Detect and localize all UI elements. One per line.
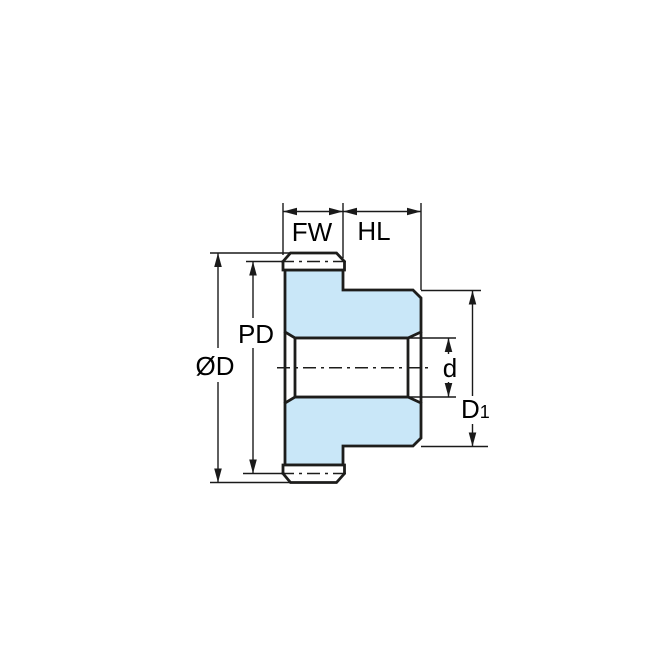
fw-label: FW bbox=[292, 217, 333, 247]
gear-cross-section bbox=[277, 253, 432, 483]
gear-lower-body bbox=[285, 397, 421, 465]
pd-label: PD bbox=[238, 319, 274, 349]
od-label: ØD bbox=[196, 351, 235, 381]
dim-hub-length: HL bbox=[343, 203, 421, 290]
d-label: d bbox=[443, 353, 457, 383]
gear-diagram-svg: FW HL ØD PD d bbox=[0, 0, 670, 670]
dim-face-width: FW bbox=[283, 203, 343, 258]
gear-dimension-diagram: FW HL ØD PD d bbox=[0, 0, 670, 670]
d1-label: D1 bbox=[461, 394, 490, 424]
gear-upper-body bbox=[285, 270, 421, 338]
hl-label: HL bbox=[357, 216, 390, 246]
d1-label-subscript: 1 bbox=[480, 402, 490, 422]
d1-label-main: D bbox=[461, 394, 480, 424]
